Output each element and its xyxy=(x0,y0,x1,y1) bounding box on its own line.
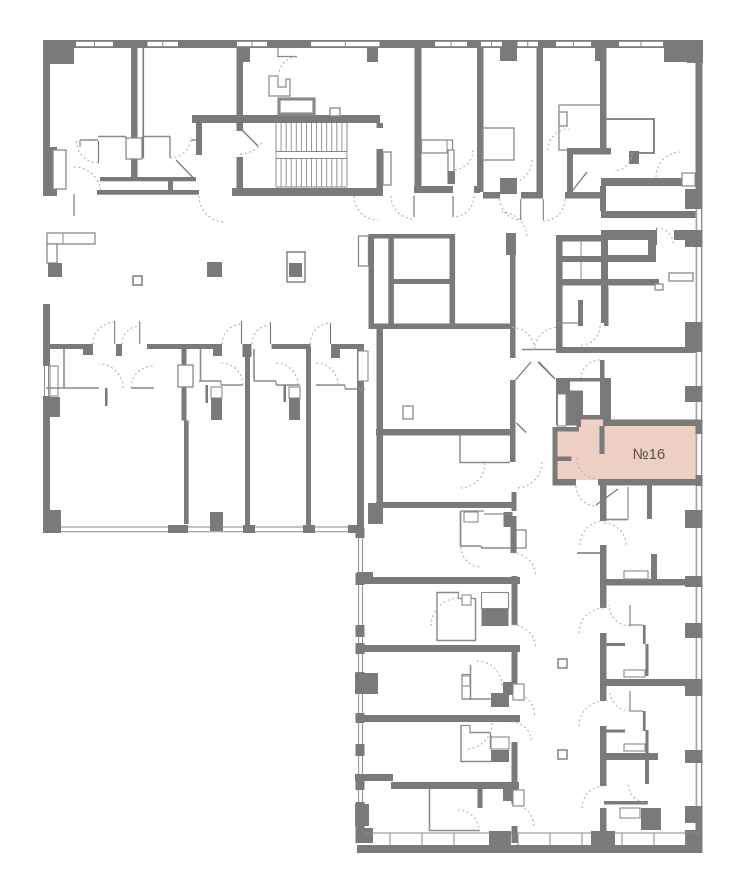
svg-text:№16: №16 xyxy=(633,446,666,463)
